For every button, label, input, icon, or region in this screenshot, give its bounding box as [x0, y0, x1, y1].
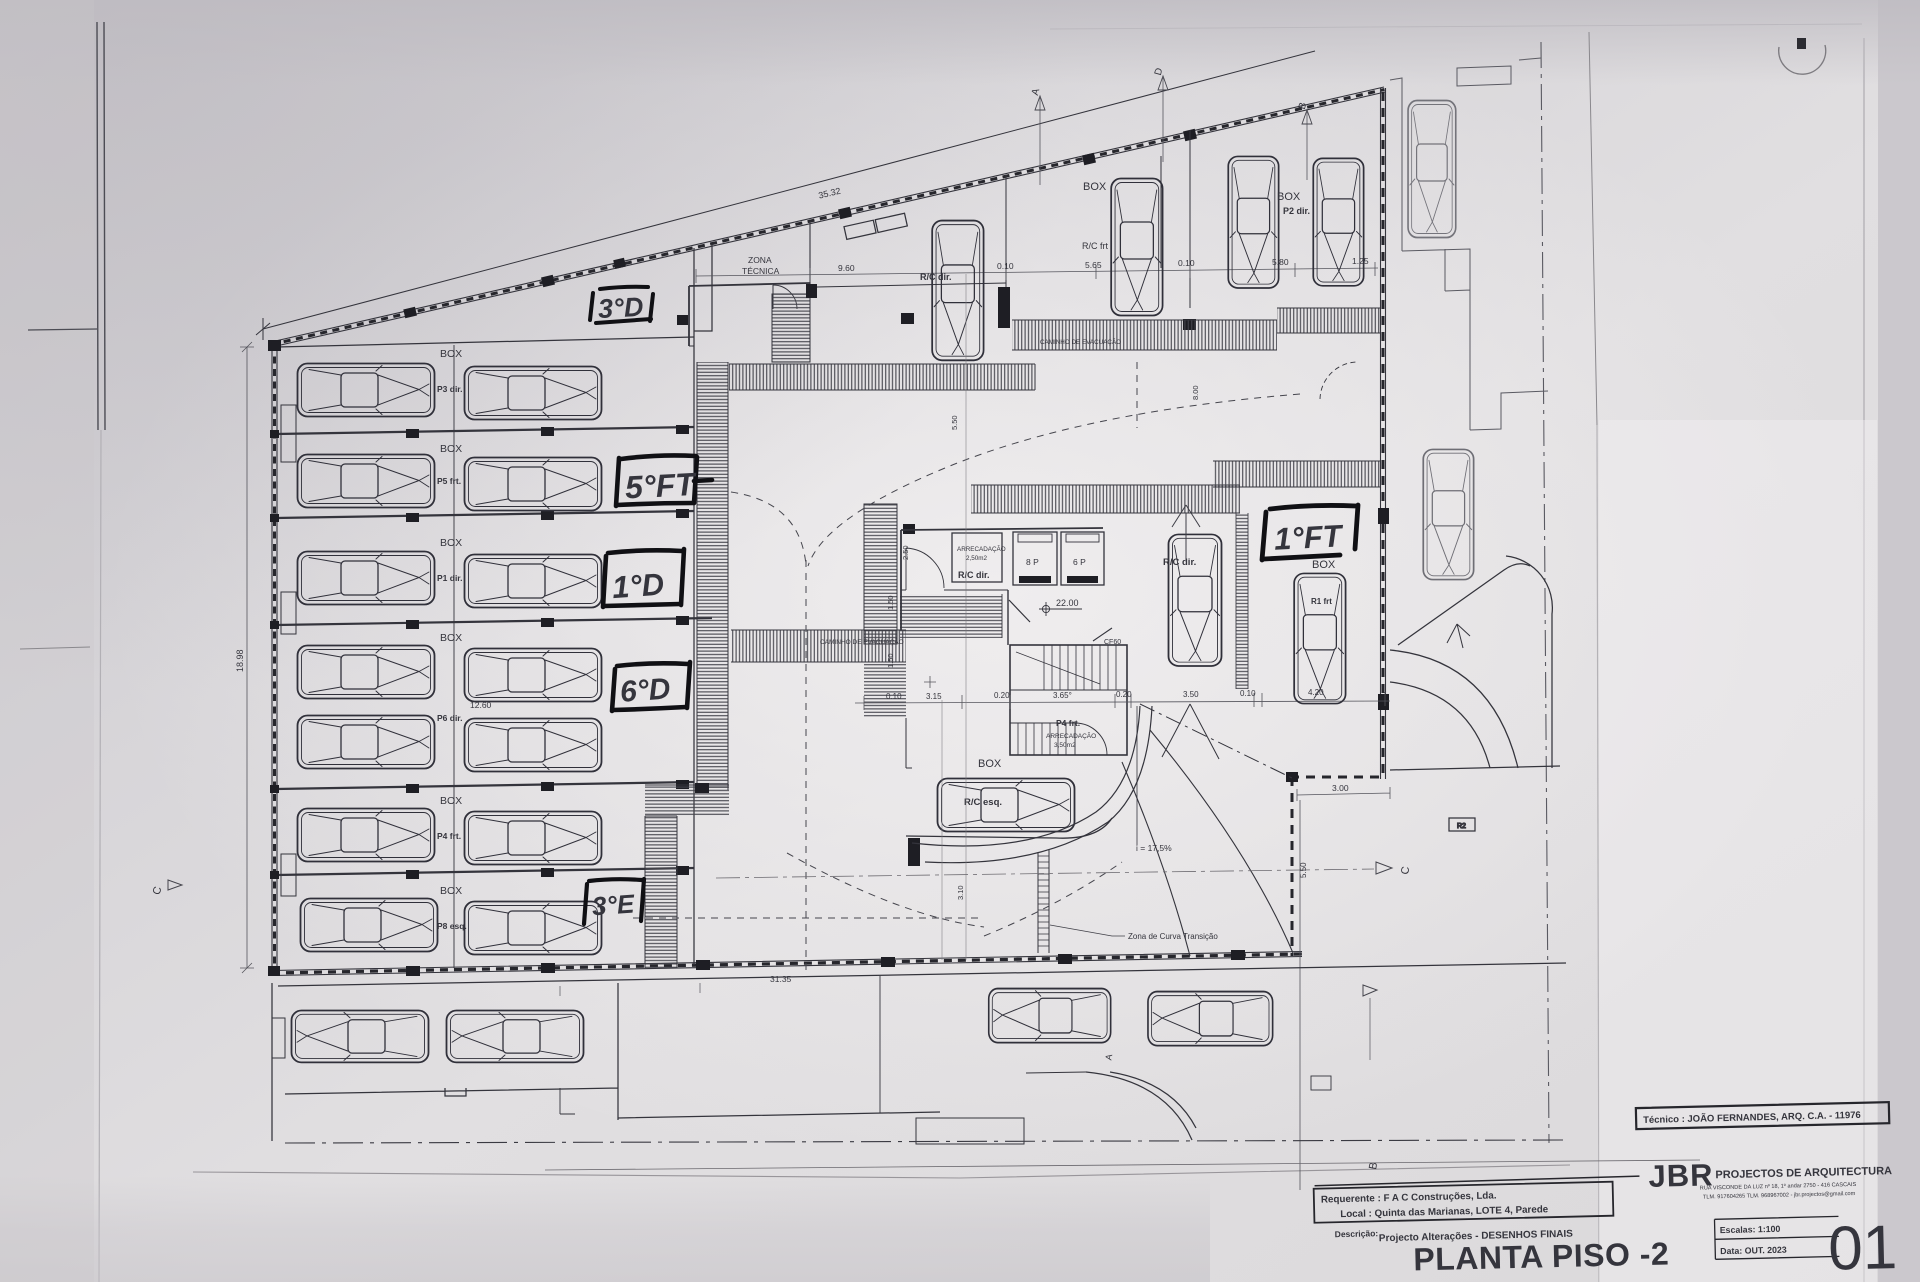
svg-text:CAMINHO DE EVACUAÇÃO: CAMINHO DE EVACUAÇÃO [820, 637, 904, 646]
svg-text:P1 dir.: P1 dir. [437, 573, 463, 583]
svg-text:R/C dir.: R/C dir. [958, 570, 990, 580]
svg-text:PLANTA PISO -2: PLANTA PISO -2 [1413, 1235, 1670, 1277]
svg-text:5°FT: 5°FT [624, 466, 698, 506]
svg-text:1.50: 1.50 [886, 653, 895, 668]
svg-text:R1 frt: R1 frt [1311, 597, 1332, 606]
svg-text:3.50: 3.50 [1183, 690, 1199, 699]
svg-text:BOX: BOX [440, 885, 462, 897]
svg-text:3.15: 3.15 [926, 692, 942, 701]
svg-text:18.98: 18.98 [235, 649, 245, 672]
svg-text:R2: R2 [1457, 823, 1466, 830]
svg-text:3.00: 3.00 [1332, 783, 1349, 793]
svg-text:0.10: 0.10 [886, 692, 902, 701]
svg-text:Data: OUT. 2023: Data: OUT. 2023 [1720, 1245, 1787, 1257]
svg-text:Zona de Curva Transição: Zona de Curva Transição [1128, 932, 1218, 941]
svg-text:P5 frt.: P5 frt. [437, 476, 461, 486]
svg-text:ARRECADAÇÃO: ARRECADAÇÃO [1046, 731, 1096, 740]
svg-text:0.20: 0.20 [994, 691, 1010, 700]
svg-text:0.20: 0.20 [1116, 690, 1132, 699]
svg-text:BOX: BOX [440, 632, 462, 644]
svg-text:2.50: 2.50 [901, 545, 910, 560]
svg-text:BOX: BOX [1312, 559, 1336, 571]
svg-text:BOX: BOX [440, 537, 462, 549]
svg-text:Descrição:: Descrição: [1335, 1228, 1379, 1239]
svg-text:BOX: BOX [440, 348, 462, 360]
svg-text:i = 17,5%: i = 17,5% [1136, 843, 1172, 853]
svg-text:1.50: 1.50 [886, 595, 895, 610]
svg-text:9.60: 9.60 [838, 263, 855, 273]
svg-text:P6 dir.: P6 dir. [437, 713, 463, 723]
svg-text:P2 dir.: P2 dir. [1283, 206, 1310, 216]
svg-text:6 P: 6 P [1073, 557, 1086, 567]
svg-text:3.10: 3.10 [956, 885, 965, 900]
svg-text:0.10: 0.10 [1240, 689, 1256, 698]
svg-text:31.35: 31.35 [770, 974, 792, 984]
svg-text:BOX: BOX [1277, 191, 1301, 203]
svg-text:BOX: BOX [1083, 181, 1107, 193]
svg-text:R/C frt: R/C frt [1082, 241, 1108, 251]
svg-text:12.60: 12.60 [470, 700, 492, 710]
svg-text:BOX: BOX [440, 443, 462, 455]
svg-text:6°D: 6°D [619, 672, 672, 708]
svg-text:P3 dir.: P3 dir. [437, 384, 463, 394]
svg-text:BOX: BOX [440, 795, 462, 807]
svg-text:01: 01 [1827, 1213, 1898, 1282]
svg-text:P4 frt.: P4 frt. [437, 831, 461, 841]
svg-text:TÉCNICA: TÉCNICA [742, 266, 780, 276]
svg-text:8.00: 8.00 [1191, 385, 1200, 400]
svg-text:1°FT: 1°FT [1273, 518, 1345, 557]
svg-text:CF60: CF60 [1104, 639, 1121, 646]
svg-text:BOX: BOX [978, 758, 1002, 770]
svg-text:ARRECADAÇÃO: ARRECADAÇÃO [957, 544, 1006, 553]
svg-text:ZONA: ZONA [748, 255, 772, 265]
svg-text:R/C esq.: R/C esq. [964, 797, 1002, 808]
svg-text:5.50: 5.50 [950, 415, 959, 430]
svg-text:CAMINHO DE EVACUAÇÃO: CAMINHO DE EVACUAÇÃO [1040, 337, 1121, 346]
svg-text:1.25: 1.25 [1352, 256, 1369, 266]
svg-text:3.65°: 3.65° [1053, 691, 1072, 700]
svg-text:3°D: 3°D [597, 292, 644, 324]
svg-text:R/C dir.: R/C dir. [1163, 557, 1196, 568]
svg-text:0.10: 0.10 [1178, 258, 1195, 268]
svg-text:5.50: 5.50 [1299, 862, 1308, 878]
svg-text:5.65: 5.65 [1085, 260, 1102, 270]
svg-text:1°D: 1°D [611, 567, 665, 606]
svg-text:0.10: 0.10 [997, 261, 1014, 271]
svg-text:P8 esq.: P8 esq. [437, 921, 467, 931]
svg-text:3,50m2: 3,50m2 [1054, 742, 1076, 749]
svg-text:3°E: 3°E [591, 888, 636, 921]
svg-text:8 P: 8 P [1026, 557, 1039, 567]
svg-text:P4 frt.: P4 frt. [1056, 718, 1080, 728]
svg-text:R/C dir.: R/C dir. [920, 272, 952, 282]
svg-text:22.00: 22.00 [1056, 598, 1079, 608]
svg-text:Escalas: 1:100: Escalas: 1:100 [1720, 1224, 1781, 1235]
svg-text:2,50m2: 2,50m2 [966, 555, 988, 562]
